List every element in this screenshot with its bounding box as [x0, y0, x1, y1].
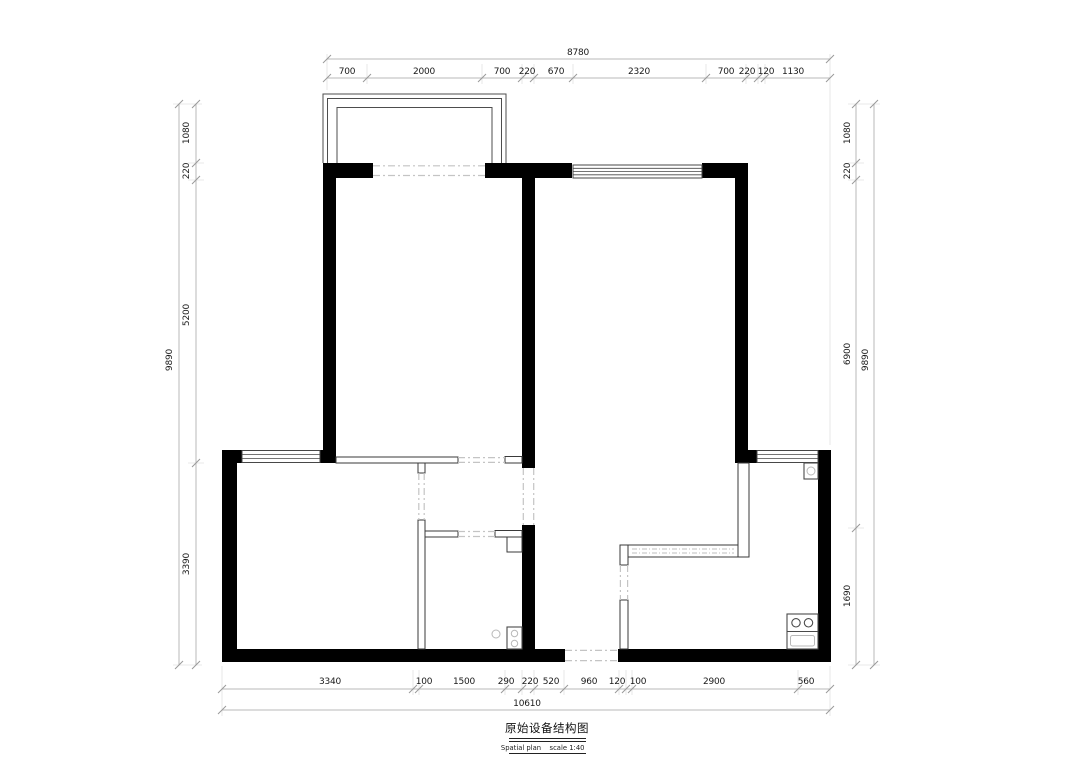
svg-text:220: 220	[739, 67, 756, 77]
svg-text:6900: 6900	[843, 342, 853, 365]
bay-window-middle-line	[328, 99, 502, 164]
svg-text:100: 100	[416, 677, 433, 687]
stove-fixture	[787, 614, 818, 649]
svg-text:2320: 2320	[628, 67, 651, 77]
svg-text:1690: 1690	[843, 584, 853, 607]
lower-top-column	[320, 450, 336, 463]
upper-right-wall-and-pier	[702, 163, 757, 463]
floor-plan-drawing: 8780 700 2000 700 220 670 2320 700 220 1…	[0, 0, 1080, 776]
bathroom-inner-opening	[458, 532, 495, 537]
kitchen-stub-lower	[620, 600, 628, 649]
svg-text:960: 960	[581, 677, 598, 687]
svg-text:2900: 2900	[703, 677, 726, 687]
sheet-title: 原始设备结构图	[505, 721, 589, 735]
dimensions-left: 1080 220 5200 3390 9890	[165, 100, 204, 669]
svg-text:670: 670	[548, 67, 565, 77]
dim-right-overall: 9890	[861, 348, 871, 371]
structural-walls	[222, 163, 831, 662]
bay-window-inner-line	[337, 108, 492, 164]
svg-text:520: 520	[543, 677, 560, 687]
dimensions-bottom: 3340 100 1500 290 220 520 960 120 100 29…	[218, 666, 834, 716]
svg-text:1130: 1130	[782, 67, 805, 77]
window-top-right	[573, 165, 702, 178]
window-kitchen	[757, 451, 818, 463]
door-openings	[373, 166, 628, 661]
middle-wall-door-opening	[523, 468, 533, 525]
kitchen-counter	[628, 545, 738, 557]
svg-text:100: 100	[630, 677, 647, 687]
svg-text:1080: 1080	[843, 121, 853, 144]
balcony-door-opening	[373, 166, 485, 176]
bathroom-fixtures	[492, 627, 522, 649]
bathroom-door-opening	[419, 473, 424, 520]
svg-text:700: 700	[339, 67, 356, 77]
svg-text:120: 120	[609, 677, 626, 687]
svg-text:1080: 1080	[182, 121, 192, 144]
dim-bottom-overall: 10610	[513, 699, 541, 709]
window-lower-left	[242, 451, 320, 463]
middle-wall-upper	[522, 163, 535, 468]
upper-left-wall-and-top	[323, 163, 373, 463]
dim-top-overall: 8780	[567, 48, 590, 58]
bath-wall-west	[418, 520, 425, 649]
svg-text:220: 220	[843, 162, 853, 179]
dim-left-overall: 9890	[165, 348, 175, 371]
kitchen-wall-north	[738, 463, 749, 557]
svg-text:120: 120	[758, 67, 775, 77]
svg-text:3390: 3390	[182, 552, 192, 575]
partition-piece-near-middle-wall	[505, 457, 522, 464]
svg-text:700: 700	[718, 67, 735, 77]
svg-text:290: 290	[498, 677, 515, 687]
svg-text:700: 700	[494, 67, 511, 77]
title-double-rule	[509, 739, 586, 742]
middle-wall-lower	[522, 525, 535, 662]
floor-plan-sheet: 8780 700 2000 700 220 670 2320 700 220 1…	[0, 0, 1080, 776]
flue-niche	[507, 537, 522, 552]
bay-window	[323, 94, 506, 163]
svg-text:2000: 2000	[413, 67, 436, 77]
partition-bedroom-south	[336, 457, 458, 463]
svg-text:220: 220	[519, 67, 536, 77]
bath-inner-partition	[425, 531, 458, 537]
svg-text:220: 220	[522, 677, 539, 687]
kitchen-stub-upper	[620, 545, 628, 565]
bath-wall-stub-top	[418, 463, 425, 473]
dimensions-right: 1080 220 6900 1690 9890	[843, 100, 880, 669]
bath-inner-piece	[495, 531, 522, 538]
sheet-subtitle-en: Spatial plan	[501, 744, 541, 752]
bedroom-door-opening	[458, 458, 505, 463]
bay-window-outer-line	[323, 94, 506, 163]
washer-fixture	[804, 463, 818, 479]
svg-text:5200: 5200	[182, 303, 192, 326]
entry-door-opening	[565, 650, 618, 660]
svg-text:220: 220	[182, 162, 192, 179]
floor-drain	[492, 630, 500, 638]
svg-text:560: 560	[798, 677, 815, 687]
svg-text:3340: 3340	[319, 677, 342, 687]
partition-walls	[336, 457, 749, 650]
title-block: 原始设备结构图 Spatial plan scale 1:40	[501, 721, 589, 754]
sheet-subtitle-scale: scale 1:40	[550, 744, 585, 752]
svg-text:1500: 1500	[453, 677, 476, 687]
kitchen-door-opening	[620, 565, 627, 600]
